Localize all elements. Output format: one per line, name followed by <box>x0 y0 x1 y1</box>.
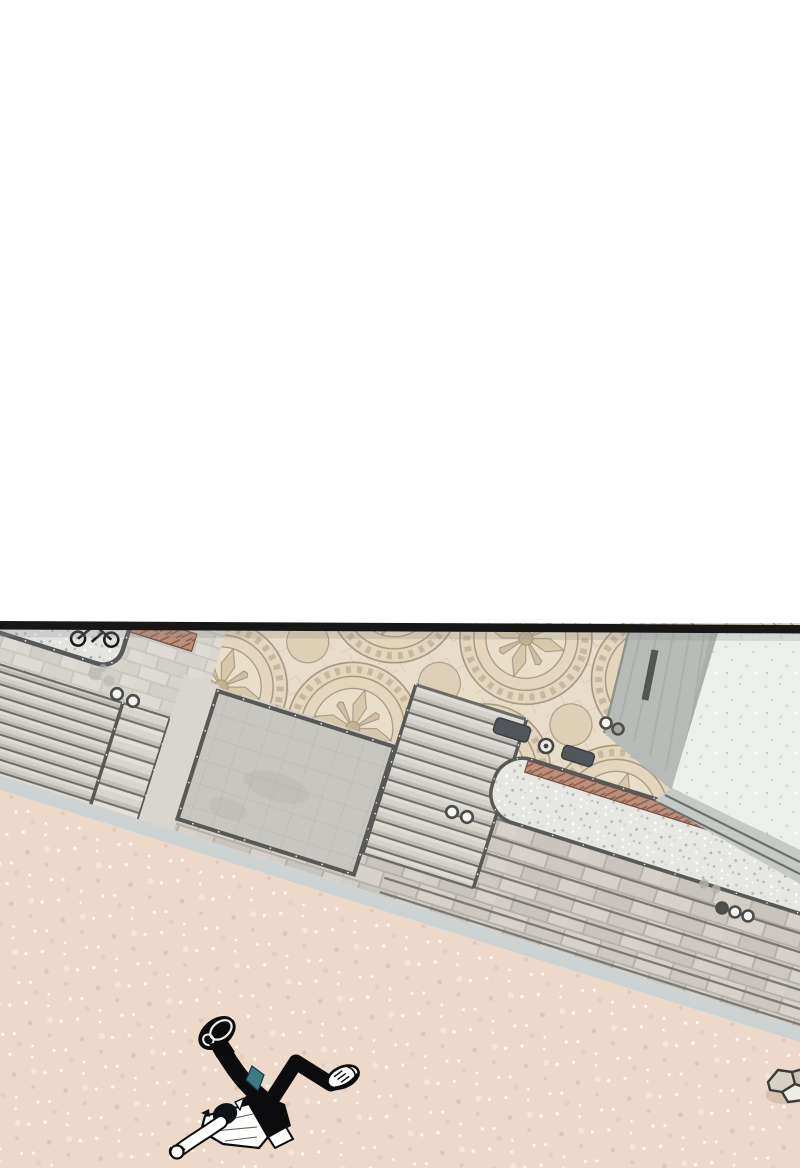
webtoon-page <box>0 0 800 1168</box>
litter-bin <box>539 739 553 753</box>
white-gutter <box>0 0 800 622</box>
scene-illustration <box>0 0 800 1168</box>
